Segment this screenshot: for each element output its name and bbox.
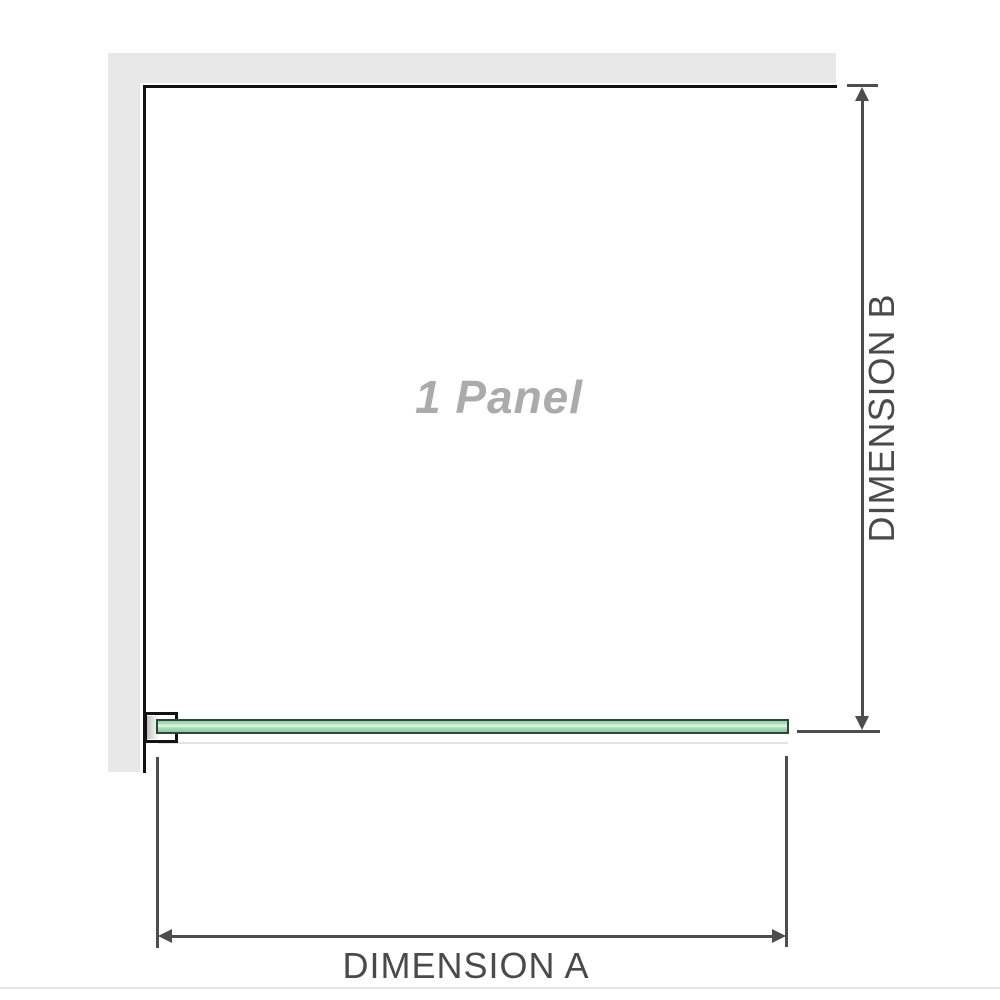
shower-panel-diagram: 1 Panel DIMENSION B DIMENSION A bbox=[0, 0, 1000, 1000]
arrow-down-icon bbox=[855, 716, 869, 730]
dimension-a-line bbox=[170, 935, 774, 938]
wall-top-band bbox=[108, 53, 836, 83]
image-bottom-edge bbox=[0, 987, 1000, 989]
dimension-a-left-extension bbox=[156, 757, 159, 948]
panel-count-label: 1 Panel bbox=[415, 370, 583, 424]
dimension-b-bottom-tick bbox=[797, 730, 880, 733]
dimension-a-label: DIMENSION A bbox=[342, 945, 589, 987]
panel-outline-left-border bbox=[143, 85, 146, 773]
wall-left-band bbox=[108, 53, 140, 772]
glass-shadow-line bbox=[158, 742, 788, 744]
panel-outline-top-border bbox=[143, 85, 837, 88]
arrow-right-icon bbox=[772, 929, 786, 943]
arrow-left-icon bbox=[158, 929, 172, 943]
dimension-b-label: DIMENSION B bbox=[861, 293, 903, 542]
dimension-a-right-extension bbox=[785, 756, 788, 947]
arrow-up-icon bbox=[855, 87, 869, 101]
glass-panel-bar bbox=[156, 719, 789, 734]
